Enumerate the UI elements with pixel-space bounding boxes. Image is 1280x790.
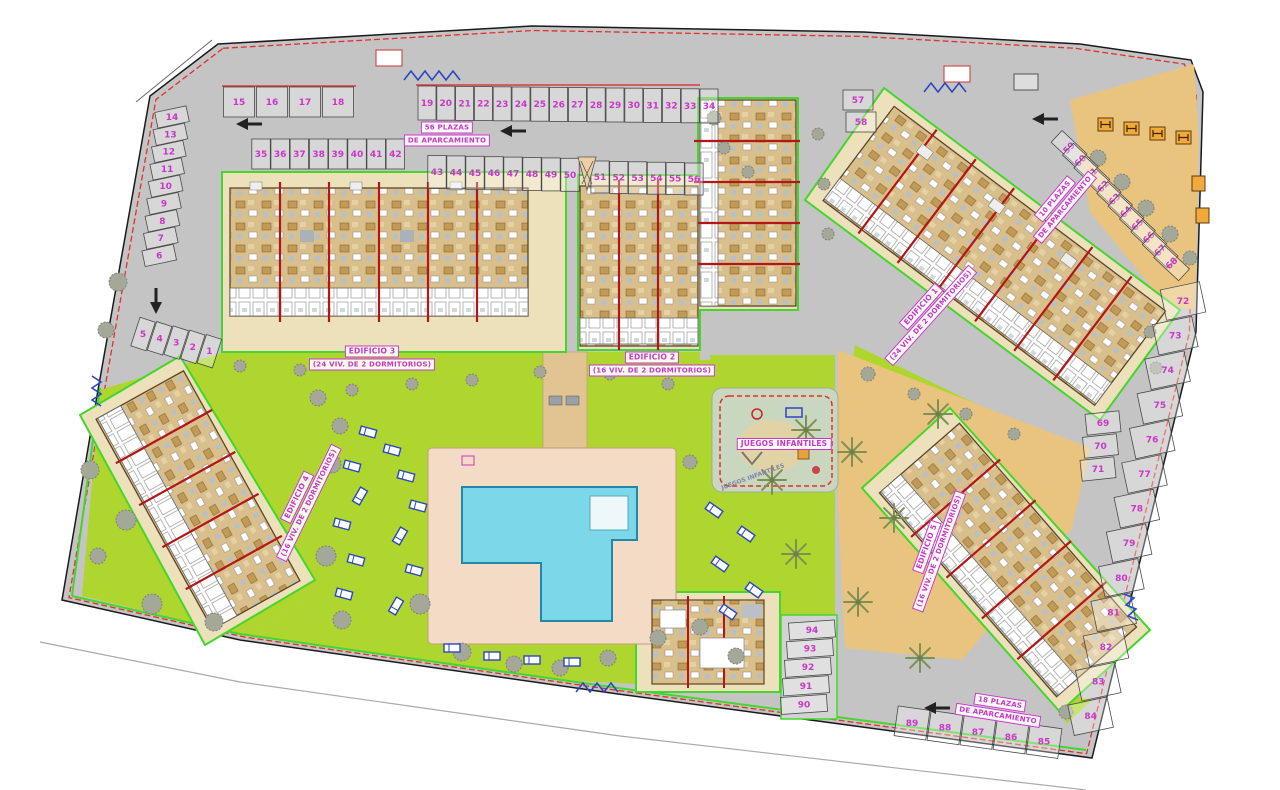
parking-group-row-51-56: 515253545556 (591, 161, 703, 195)
label-parking-top: 56 PLAZAS DE APARCAMIENTO (404, 122, 490, 147)
parking-space-number: 50 (564, 171, 577, 181)
parking-space-number: 42 (389, 150, 402, 160)
parking-space-number: 37 (293, 150, 306, 160)
parking-space-number: 81 (1107, 608, 1120, 618)
parking-space-number: 12 (163, 148, 176, 158)
parking-space-number: 74 (1161, 366, 1174, 376)
parking-space-number: 55 (669, 175, 682, 185)
parking-space-number: 92 (802, 663, 815, 673)
parking-space-number: 77 (1138, 470, 1151, 480)
parking-space-number: 73 (1169, 332, 1182, 342)
parking-space-number: 54 (650, 174, 663, 184)
parking-space-number: 21 (458, 99, 471, 109)
parking-space-number: 19 (421, 99, 434, 109)
tree-icon (205, 613, 223, 631)
tree-icon (142, 594, 162, 614)
tree-icon (109, 273, 127, 291)
parking-space-number: 39 (332, 150, 345, 160)
sun-lounger-icon (564, 658, 580, 666)
palm-tree-icon (844, 588, 872, 616)
tree-icon (332, 418, 348, 434)
parking-space-number: 8 (159, 217, 165, 227)
tree-icon (861, 367, 875, 381)
sun-lounger-icon (444, 644, 460, 652)
tree-icon (822, 228, 834, 240)
palm-tree-icon (906, 644, 934, 672)
sun-lounger-icon (524, 656, 540, 664)
parking-group-col-69-71: 697071 (1080, 411, 1121, 481)
tree-icon (818, 178, 830, 190)
parking-space-number: 51 (594, 173, 607, 183)
parking-space-number: 84 (1084, 712, 1097, 722)
parking-space-number: 26 (552, 100, 565, 110)
building-name: EDIFICIO 3 (345, 346, 400, 358)
parking-space-number: 2 (190, 343, 196, 353)
tree-icon (662, 378, 674, 390)
parking-space-number: 46 (488, 169, 501, 179)
parking-space-number: 27 (571, 101, 584, 111)
tree-icon (333, 611, 351, 629)
parking-space-number: 13 (164, 130, 177, 140)
parking-space-number: 32 (665, 102, 678, 112)
parking-space-number: 5 (140, 330, 146, 340)
parking-space-number: 93 (804, 645, 817, 655)
parking-space-number: 56 (688, 175, 701, 185)
parking-space-number: 78 (1131, 505, 1144, 515)
tree-icon (1162, 226, 1178, 242)
parking-space-number: 57 (852, 96, 865, 106)
label-edificio-2: EDIFICIO 2 (16 VIV. DE 2 DORMITORIOS) (589, 352, 715, 377)
parking-space-number: 89 (906, 719, 919, 729)
parking-space-number: 70 (1094, 442, 1107, 452)
tree-icon (90, 548, 106, 564)
tree-icon (692, 619, 708, 635)
parking-space-number: 52 (613, 173, 626, 183)
parking-space-number: 43 (431, 168, 444, 178)
pool-platform (590, 496, 628, 530)
play-equipment-spring (812, 466, 820, 474)
sun-lounger-icon (484, 652, 500, 660)
parking-space-number: 58 (855, 118, 868, 128)
parking-space-number: 53 (631, 174, 644, 184)
parking-space-number: 79 (1123, 539, 1136, 549)
tree-icon (718, 142, 730, 154)
parking-space-number: 1 (206, 347, 212, 357)
tree-icon (81, 461, 99, 479)
palm-tree-icon (782, 540, 810, 568)
parking-space-number: 7 (158, 234, 164, 244)
parking-group-row-43-50: 4344454647484950 (428, 156, 579, 192)
tree-icon (534, 366, 546, 378)
tree-icon (600, 650, 616, 666)
site-plan: 5432114131211109876151617181920212223242… (0, 0, 1280, 790)
tree-icon (1183, 251, 1197, 265)
parking-space-number: 76 (1146, 435, 1159, 445)
parking-space-number: 3 (173, 339, 179, 349)
parking-space-number: 71 (1092, 465, 1105, 475)
parking-space-number: 17 (299, 98, 312, 108)
parking-space-number: 15 (233, 98, 246, 108)
parking-space-number: 82 (1100, 643, 1113, 653)
parking-space-number: 47 (507, 170, 520, 180)
parking-space-number: 10 (159, 182, 172, 192)
parking-space-number: 90 (798, 700, 811, 710)
facility-building (652, 596, 764, 688)
parking-space-number: 31 (646, 101, 659, 111)
palm-tree-icon (838, 438, 866, 466)
tree-icon (234, 360, 246, 372)
tree-icon (346, 384, 358, 396)
parking-space-number: 83 (1092, 678, 1105, 688)
parking-space-number: 36 (274, 150, 287, 160)
tree-icon (1008, 428, 1020, 440)
tree-icon (294, 364, 306, 376)
parking-space-number: 25 (534, 100, 547, 110)
parking-space-number: 34 (703, 102, 716, 112)
tree-icon (506, 656, 522, 672)
building-units: (16 VIV. DE 2 DORMITORIOS) (589, 365, 715, 377)
parking-space-number: 48 (526, 170, 539, 180)
parking-space-number: 87 (972, 728, 985, 738)
parking-space-number: 75 (1154, 401, 1167, 411)
tree-icon (1138, 200, 1154, 216)
parking-space-number: 85 (1038, 737, 1051, 747)
parking-space-number: 9 (161, 200, 167, 210)
tree-icon (812, 128, 824, 140)
parking-space-number: 44 (450, 168, 463, 178)
parking-space-number: 18 (332, 98, 345, 108)
parking-space-number: 11 (161, 165, 174, 175)
parking-space-number: 14 (166, 113, 179, 123)
parking-space-number: 49 (545, 170, 558, 180)
parking-group-row-35-42: 3536373839404142 (252, 139, 405, 169)
parking-space-number: 23 (496, 100, 509, 110)
tree-icon (406, 378, 418, 390)
tree-icon (683, 455, 697, 469)
tree-icon (116, 510, 136, 530)
site-plan-canvas: 5432114131211109876151617181920212223242… (0, 0, 1280, 790)
tree-icon (316, 546, 336, 566)
tree-icon (742, 166, 754, 178)
parking-space-number: 24 (515, 100, 528, 110)
tree-icon (98, 322, 114, 338)
label-playground: JUEGOS INFANTILES (737, 438, 832, 450)
building-edificio-3 (230, 182, 528, 322)
parking-space-number: 6 (156, 251, 162, 261)
parking-space-number: 22 (477, 100, 490, 110)
palm-tree-icon (924, 400, 952, 428)
parking-space-number: 33 (684, 102, 697, 112)
parking-space-number: 91 (800, 682, 813, 692)
building-name: EDIFICIO 2 (625, 352, 680, 364)
parking-space-number: 35 (255, 150, 268, 160)
parking-space-number: 4 (156, 334, 162, 344)
tree-icon (908, 388, 920, 400)
parking-space-number: 80 (1115, 574, 1128, 584)
parking-space-number: 72 (1177, 297, 1190, 307)
tree-icon (410, 594, 430, 614)
tree-icon (728, 648, 744, 664)
parking-space-number: 94 (806, 626, 819, 636)
parking-space-number: 41 (370, 150, 383, 160)
parking-space-number: 29 (609, 101, 622, 111)
label-edificio-3: EDIFICIO 3 (24 VIV. DE 2 DORMITORIOS) (309, 346, 435, 371)
tree-icon (466, 374, 478, 386)
parking-space-number: 16 (266, 98, 279, 108)
tree-icon (310, 390, 326, 406)
parking-space-number: 38 (312, 150, 325, 160)
parking-space-number: 88 (939, 724, 952, 734)
building-units: (24 VIV. DE 2 DORMITORIOS) (309, 359, 435, 371)
parking-space-number: 86 (1005, 733, 1018, 743)
palm-tree-icon (880, 504, 908, 532)
parking-space-number: 30 (628, 101, 641, 111)
tree-icon (960, 408, 972, 420)
parking-space-number: 28 (590, 101, 603, 111)
parking-space-number: 40 (351, 150, 364, 160)
tree-icon (650, 630, 666, 646)
parking-space-number: 69 (1097, 419, 1110, 429)
parking-space-number: 45 (469, 169, 482, 179)
parking-space-number: 20 (440, 99, 453, 109)
